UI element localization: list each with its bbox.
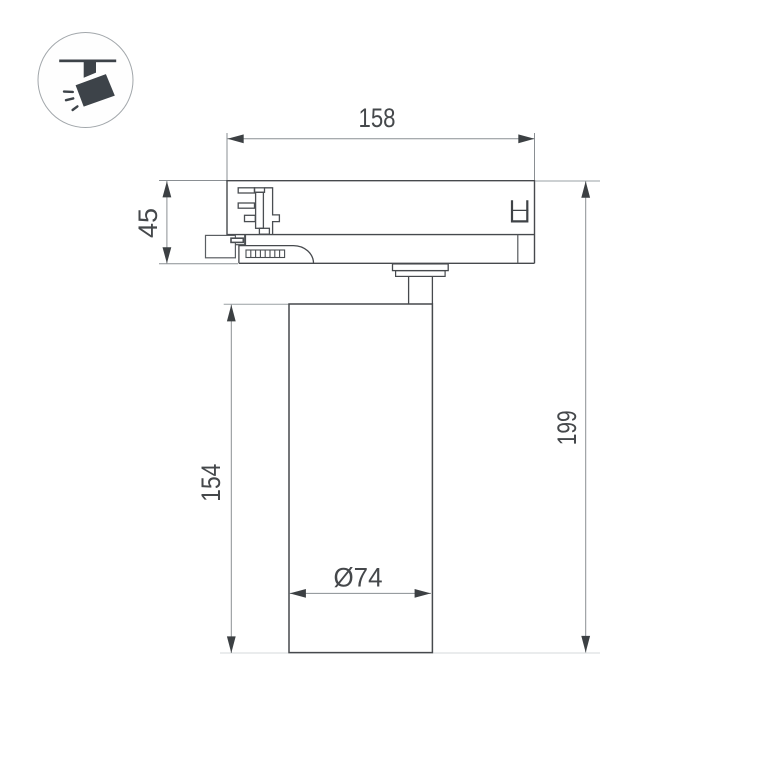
svg-text:154: 154 <box>196 464 226 502</box>
svg-text:158: 158 <box>359 103 396 133</box>
svg-text:Ø74: Ø74 <box>334 563 383 593</box>
svg-text:45: 45 <box>133 208 163 238</box>
svg-text:199: 199 <box>552 410 582 445</box>
